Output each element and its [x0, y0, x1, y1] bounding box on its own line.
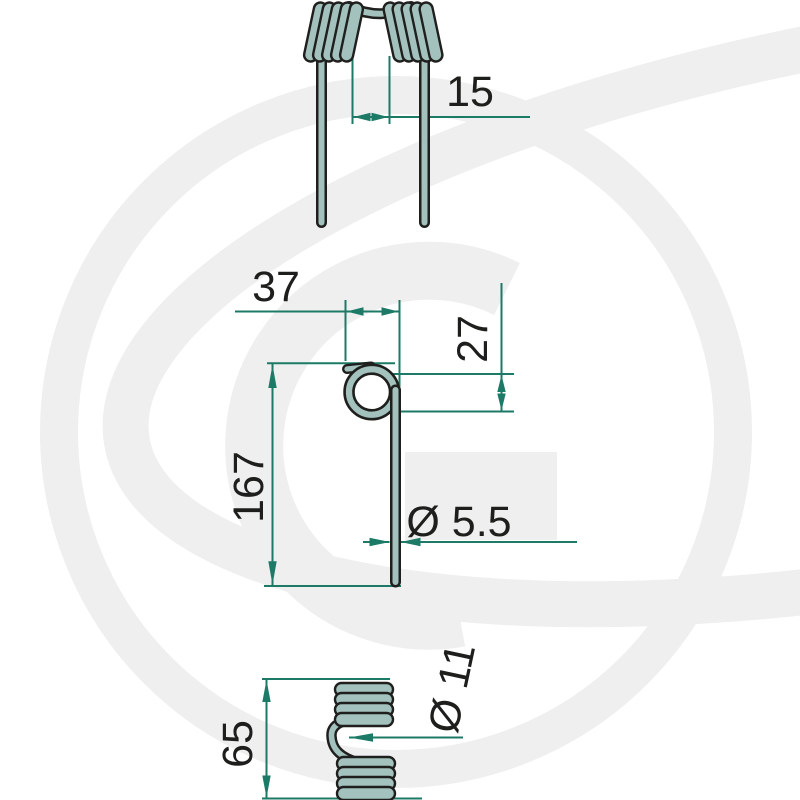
dim-label-dia-11: Ø 11 — [419, 639, 485, 737]
watermark-g-letter — [254, 271, 557, 621]
dim-label-27: 27 — [449, 315, 497, 363]
end-view — [331, 683, 395, 800]
coil-loop — [337, 787, 395, 800]
arrowhead-up — [497, 375, 505, 392]
technical-drawing-canvas: 15 37 27 167 Ø 5.5 — [0, 0, 800, 800]
dim-label-dia-5-5: Ø 5.5 — [406, 498, 511, 546]
coil-stack-bottom — [337, 757, 395, 800]
arrowhead-left — [349, 733, 373, 742]
side-view — [347, 367, 396, 583]
spring-tine-drawing: 15 37 27 167 Ø 5.5 — [0, 0, 800, 800]
arrowhead-down — [262, 776, 270, 798]
coil-stack-top — [335, 683, 393, 726]
dim-label-167: 167 — [225, 451, 273, 523]
arrowhead-up — [262, 680, 270, 702]
arrowhead-down — [497, 394, 505, 411]
dim-label-15: 15 — [446, 68, 494, 116]
arrowhead-right — [382, 307, 399, 316]
coil-stack-right — [382, 1, 443, 62]
coil-eye-fill — [349, 369, 395, 415]
coil-loop — [335, 713, 393, 726]
dim-label-65: 65 — [214, 720, 262, 768]
dim-label-37: 37 — [252, 263, 300, 311]
arrowhead-right — [370, 538, 390, 547]
coil-stack-left — [303, 1, 364, 62]
